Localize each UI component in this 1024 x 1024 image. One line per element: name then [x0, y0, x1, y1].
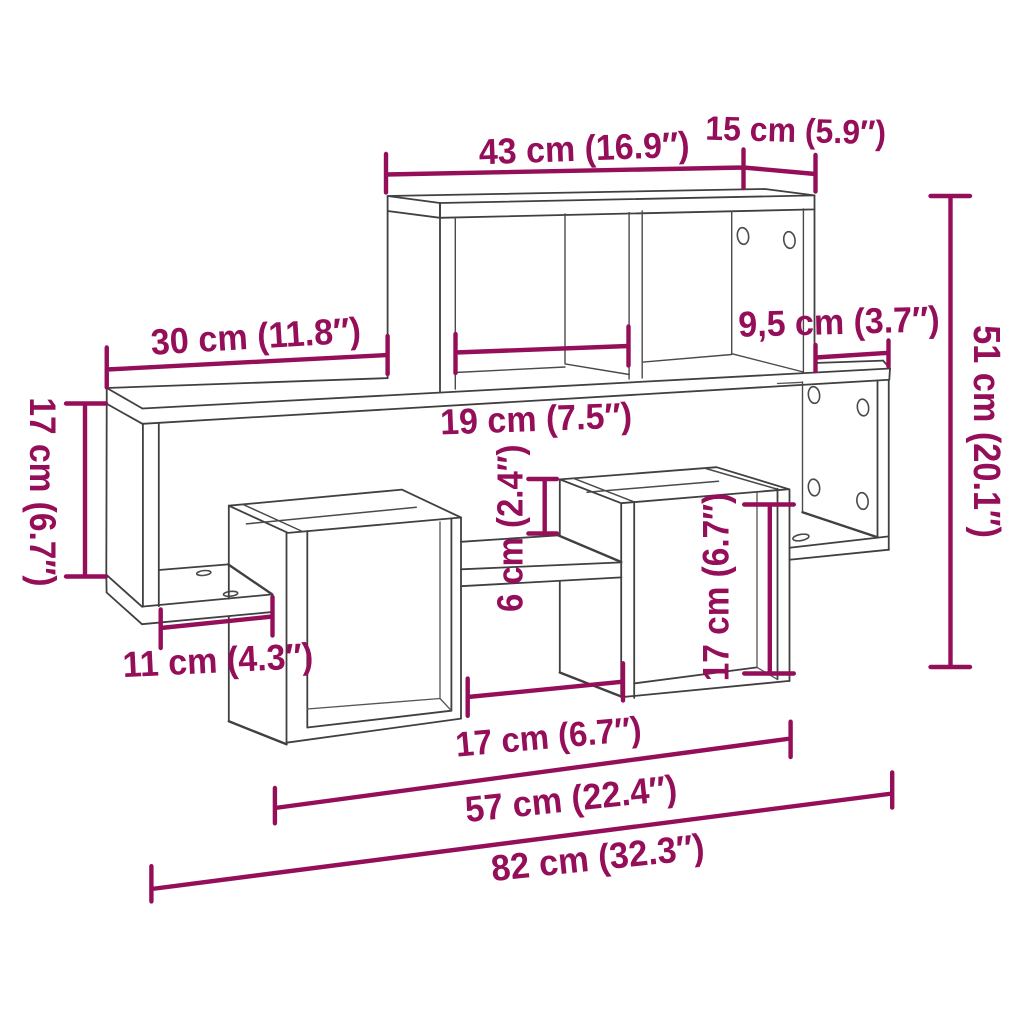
- svg-text:19 cm (7.5″): 19 cm (7.5″): [439, 396, 632, 443]
- svg-text:17 cm (6.7″): 17 cm (6.7″): [22, 397, 63, 586]
- svg-text:17 cm (6.7″): 17 cm (6.7″): [696, 493, 737, 682]
- svg-text:6 cm (2.4″): 6 cm (2.4″): [491, 445, 531, 613]
- svg-text:15 cm (5.9″): 15 cm (5.9″): [705, 109, 887, 152]
- svg-text:9,5 cm (3.7″): 9,5 cm (3.7″): [738, 299, 940, 345]
- svg-text:51 cm (20.1″): 51 cm (20.1″): [966, 325, 1009, 538]
- svg-text:43 cm (16.9″): 43 cm (16.9″): [478, 125, 690, 173]
